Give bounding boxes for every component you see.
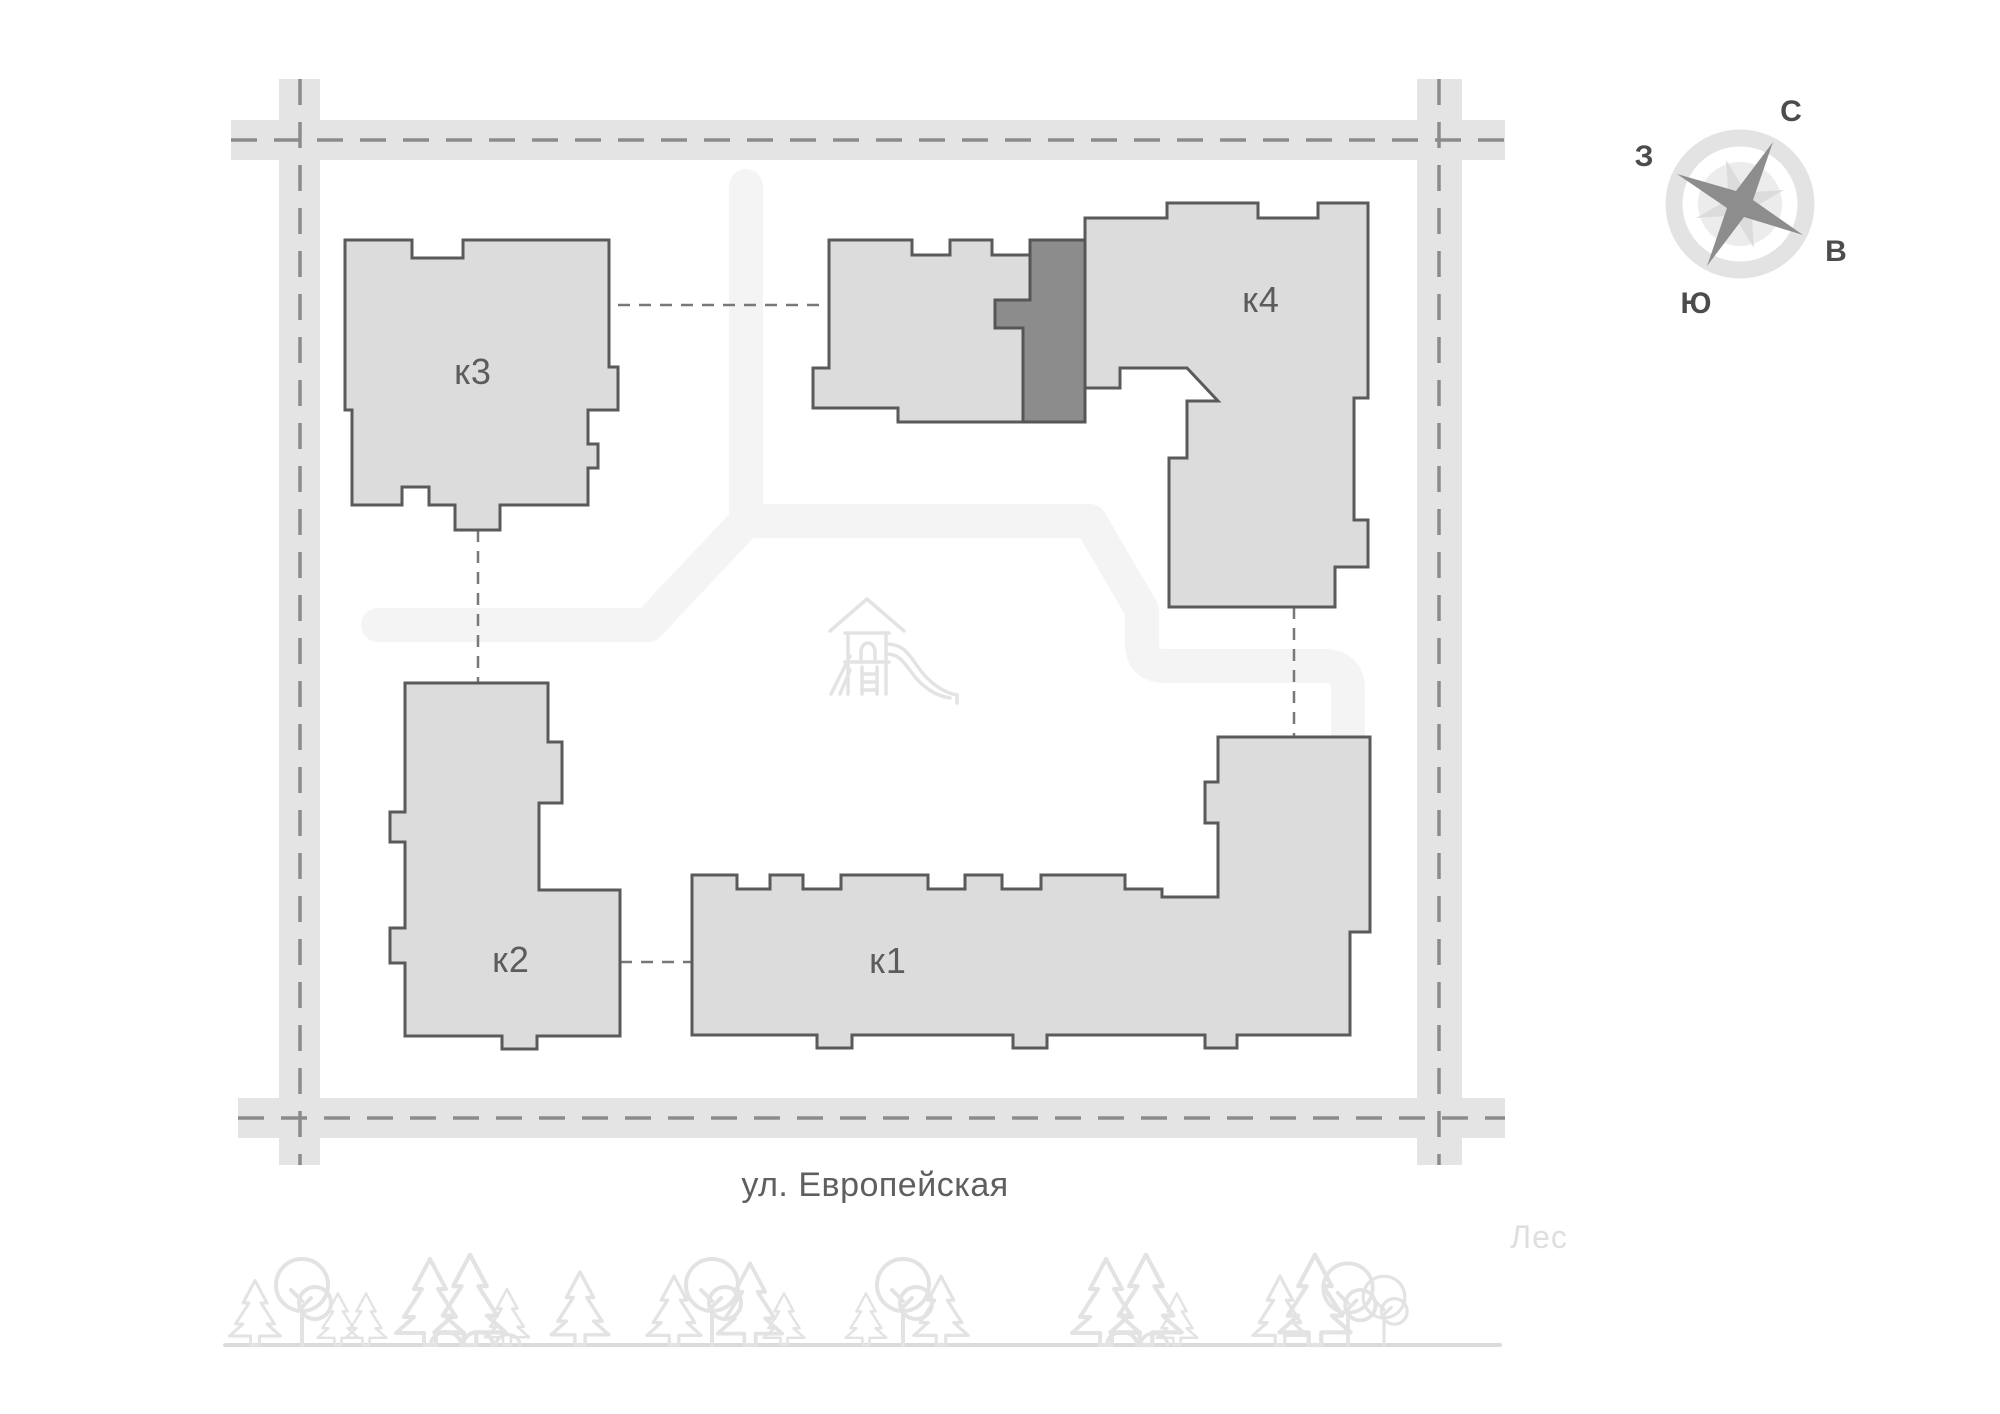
compass-rose-icon: С З В Ю bbox=[1635, 95, 1847, 320]
building-k2-label: к2 bbox=[492, 939, 530, 980]
building-k4-label: к4 bbox=[1242, 279, 1280, 320]
compass-label-west: З bbox=[1635, 140, 1654, 173]
building-k1-label: к1 bbox=[869, 940, 907, 981]
building-k1[interactable] bbox=[692, 737, 1370, 1048]
site-plan: к3 к4 к2 к1 ул. Европейская С З В Ю bbox=[0, 0, 2000, 1414]
fir-tree-icon bbox=[346, 1293, 387, 1345]
forest-trees bbox=[230, 1255, 1408, 1345]
fir-tree-icon bbox=[551, 1272, 609, 1345]
walk-path-diagonal bbox=[648, 521, 746, 625]
fir-tree-icon bbox=[230, 1281, 281, 1346]
building-k4[interactable] bbox=[1085, 203, 1368, 607]
compass-label-south: Ю bbox=[1681, 287, 1712, 320]
site-plan-page: к3 к4 к2 к1 ул. Европейская С З В Ю bbox=[0, 0, 2000, 1414]
playground-slide-icon bbox=[830, 599, 957, 703]
compass-label-north: С bbox=[1780, 95, 1802, 128]
round-tree-icon bbox=[877, 1259, 932, 1345]
forest-strip: Лес bbox=[225, 1219, 1568, 1345]
building-k2[interactable] bbox=[390, 683, 620, 1049]
building-k3-label: к3 bbox=[454, 351, 492, 392]
round-tree-icon bbox=[1363, 1276, 1407, 1345]
fir-tree-icon bbox=[647, 1276, 701, 1345]
street-name-label: ул. Европейская bbox=[741, 1166, 1008, 1204]
compass-label-east: В bbox=[1825, 235, 1847, 268]
forest-label: Лес bbox=[1510, 1219, 1568, 1255]
building-center[interactable] bbox=[813, 240, 1030, 422]
